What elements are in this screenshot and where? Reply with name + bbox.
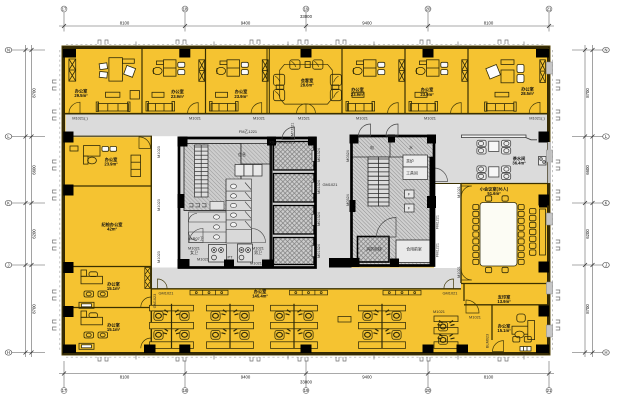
svg-text:6200: 6200 <box>31 229 36 239</box>
svg-text:23.9m²: 23.9m² <box>171 94 185 99</box>
svg-text:H: H <box>605 350 608 355</box>
svg-text:42m²: 42m² <box>107 227 117 232</box>
svg-text:9400: 9400 <box>241 375 251 380</box>
svg-text:21: 21 <box>547 7 552 12</box>
svg-text:19: 19 <box>304 388 309 393</box>
svg-text:8700: 8700 <box>31 88 36 98</box>
svg-text:K: K <box>605 201 608 206</box>
svg-text:18: 18 <box>183 7 188 12</box>
svg-text:M1021(.): M1021(.) <box>529 116 545 121</box>
svg-text:M1021: M1021 <box>457 186 461 198</box>
svg-text:M01324: M01324 <box>317 180 321 194</box>
svg-text:28.5m²: 28.5m² <box>521 91 535 96</box>
svg-text:23.9m²: 23.9m² <box>351 92 365 97</box>
svg-text:M1023: M1023 <box>157 251 161 263</box>
svg-text:15.1m²: 15.1m² <box>107 327 121 332</box>
svg-text:K: K <box>7 201 10 206</box>
svg-text:工具间: 工具间 <box>406 171 418 176</box>
svg-text:18: 18 <box>183 388 188 393</box>
svg-text:8100: 8100 <box>484 375 494 380</box>
svg-text:消防电梯: 消防电梯 <box>366 247 382 252</box>
svg-text:9400: 9400 <box>362 375 372 380</box>
svg-text:M0324: M0324 <box>346 194 350 206</box>
svg-text:M1021: M1021 <box>424 116 436 121</box>
svg-text:N: N <box>605 48 608 53</box>
svg-text:FM1221: FM1221 <box>436 215 440 229</box>
svg-text:J: J <box>605 263 607 268</box>
svg-text:23.9m²: 23.9m² <box>104 162 118 167</box>
svg-text:33000: 33000 <box>300 380 313 385</box>
svg-text:N: N <box>7 48 10 53</box>
svg-text:6600: 6600 <box>585 165 590 175</box>
svg-text:GM1023: GM1023 <box>153 294 157 309</box>
svg-text:9400: 9400 <box>241 20 251 25</box>
svg-text:36.4m²: 36.4m² <box>512 161 526 166</box>
svg-text:29.5m²: 29.5m² <box>74 93 88 98</box>
svg-text:23.9m²: 23.9m² <box>420 92 434 97</box>
svg-text:8700: 8700 <box>585 304 590 314</box>
svg-text:M1021: M1021 <box>457 266 461 278</box>
svg-text:男卫: 男卫 <box>254 250 262 255</box>
svg-text:15.1m²: 15.1m² <box>107 286 121 291</box>
svg-text:合用前室: 合用前室 <box>406 247 422 252</box>
svg-text:女卫: 女卫 <box>190 250 198 255</box>
svg-text:17: 17 <box>62 7 67 12</box>
svg-text:20: 20 <box>426 388 431 393</box>
svg-text:M1021: M1021 <box>469 315 481 320</box>
svg-text:8700: 8700 <box>585 88 590 98</box>
svg-text:XS-FM-RD315: XS-FM-RD315 <box>269 140 295 145</box>
svg-text:13.9m²: 13.9m² <box>497 299 511 304</box>
svg-text:8100: 8100 <box>484 20 494 25</box>
svg-text:20: 20 <box>426 7 431 12</box>
svg-text:M1021: M1021 <box>253 116 265 121</box>
svg-text:GM1021: GM1021 <box>159 291 174 296</box>
svg-text:8100: 8100 <box>120 375 130 380</box>
svg-text:M01324: M01324 <box>317 148 321 162</box>
svg-text:51.6m²: 51.6m² <box>487 191 501 196</box>
svg-text:9400: 9400 <box>362 20 372 25</box>
svg-text:M1521: M1521 <box>298 116 310 121</box>
svg-text:M01324: M01324 <box>317 212 321 226</box>
svg-text:M1021: M1021 <box>189 116 201 121</box>
svg-text:33000: 33000 <box>300 14 313 19</box>
svg-text:15.1m²: 15.1m² <box>497 328 511 333</box>
svg-text:电: 电 <box>370 145 374 150</box>
svg-text:6200: 6200 <box>585 229 590 239</box>
svg-text:6600: 6600 <box>31 165 36 175</box>
svg-text:8700: 8700 <box>31 304 36 314</box>
svg-text:145.4m²: 145.4m² <box>252 294 268 299</box>
svg-text:23.9m²: 23.9m² <box>234 94 248 99</box>
svg-text:M0324: M0324 <box>346 150 350 162</box>
svg-text:M R07卫: M R07卫 <box>188 236 203 241</box>
svg-text:8100: 8100 <box>120 20 130 25</box>
svg-text:GM1021: GM1021 <box>323 182 338 187</box>
svg-text:M1023: M1023 <box>157 146 161 158</box>
svg-text:H: H <box>7 350 10 355</box>
svg-text:BLM023: BLM023 <box>485 334 489 348</box>
svg-text:FM乙1221: FM乙1221 <box>239 129 257 134</box>
svg-text:M1023: M1023 <box>157 199 161 211</box>
svg-text:J: J <box>7 263 9 268</box>
svg-text:17: 17 <box>62 388 67 393</box>
svg-text:PT: PT <box>228 255 234 260</box>
svg-text:21: 21 <box>547 388 552 393</box>
svg-text:M01324: M01324 <box>317 244 321 258</box>
svg-text:GM1021: GM1021 <box>443 291 458 296</box>
svg-text:M1021(.): M1021(.) <box>72 116 88 121</box>
svg-text:19: 19 <box>304 7 309 12</box>
svg-text:信息: 信息 <box>238 152 246 157</box>
svg-text:28.6m²: 28.6m² <box>300 83 314 88</box>
svg-text:M1021: M1021 <box>197 257 209 262</box>
svg-text:FM7J221: FM7J221 <box>290 123 294 139</box>
svg-text:M1021: M1021 <box>356 116 368 121</box>
svg-text:M1021: M1021 <box>433 309 445 314</box>
svg-text:FM1221: FM1221 <box>436 243 440 257</box>
svg-text:茶炉: 茶炉 <box>406 159 414 164</box>
svg-text:水: 水 <box>409 145 413 150</box>
svg-text:M1021: M1021 <box>250 261 262 266</box>
